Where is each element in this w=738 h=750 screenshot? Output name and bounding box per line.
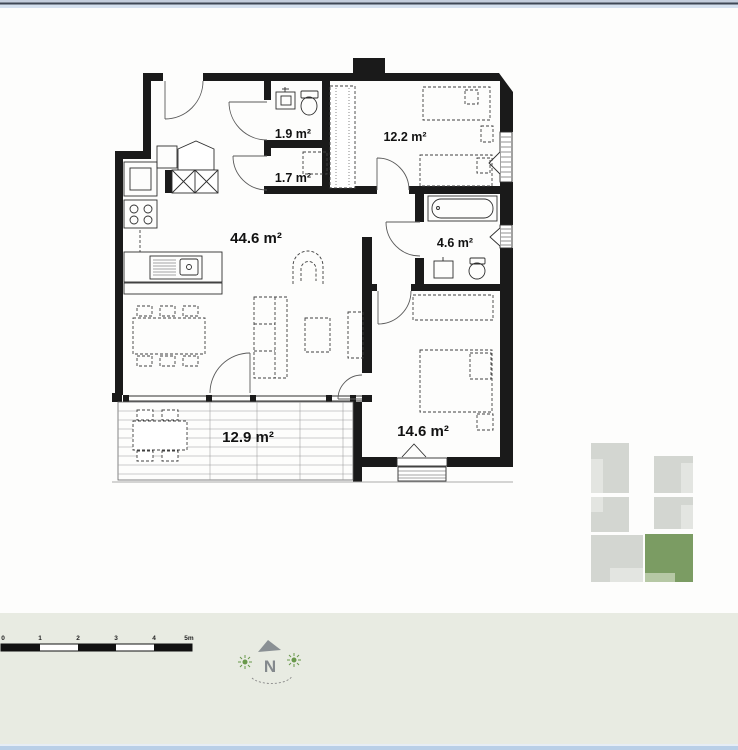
scale-tick-0: 0 (1, 635, 5, 642)
north-letter: N (264, 657, 276, 676)
room-label-wc: 1.9 m² (275, 127, 311, 141)
wardrobe-column (330, 86, 355, 188)
window-bottom-edge (0, 744, 738, 750)
sun-icon-right (287, 653, 301, 667)
site-plan (591, 443, 693, 582)
scale-tick-4: 4 (152, 635, 156, 642)
bedroom1-furniture (413, 295, 493, 430)
scale-tick-1: 1 (38, 635, 42, 642)
room-label-reduit: 1.7 m² (275, 171, 311, 185)
room-label-loggia: 12.9 m² (222, 429, 274, 446)
floor-plan-page: 1.9 m² 1.7 m² 12.2 m² 44.6 m² 4.6 m² 14.… (0, 0, 738, 750)
window-top-edge (0, 0, 738, 8)
room-label-living: 44.6 m² (230, 230, 282, 247)
north-arrow-icon (258, 640, 281, 652)
room-label-bathroom: 4.6 m² (437, 236, 473, 250)
sun-icon-left (238, 655, 252, 669)
scale-tick-2: 2 (76, 635, 80, 642)
footer-band: 0 1 2 3 4 5m N (0, 613, 738, 744)
plan-sheet: 1.9 m² 1.7 m² 12.2 m² 44.6 m² 4.6 m² 14.… (0, 8, 738, 613)
floor-plan-drawing: 1.9 m² 1.7 m² 12.2 m² 44.6 m² 4.6 m² 14.… (0, 8, 738, 613)
scale-tick-5: 5m (184, 635, 194, 642)
north-compass: N (225, 625, 315, 695)
window-bathroom (490, 225, 512, 248)
room-label-bedroom1: 14.6 m² (397, 423, 449, 440)
compass-arc (252, 676, 292, 683)
living-furniture (133, 251, 363, 378)
scale-bar: 0 1 2 3 4 5m (0, 628, 200, 658)
window-bedroom2 (489, 132, 512, 182)
scale-tick-3: 3 (114, 635, 118, 642)
window-bedroom1-steps (397, 444, 447, 481)
bedroom2-furniture (420, 87, 493, 186)
wc-fixtures (276, 87, 318, 115)
loggia-glazing (123, 395, 362, 402)
room-label-bedroom2: 12.2 m² (383, 130, 426, 144)
